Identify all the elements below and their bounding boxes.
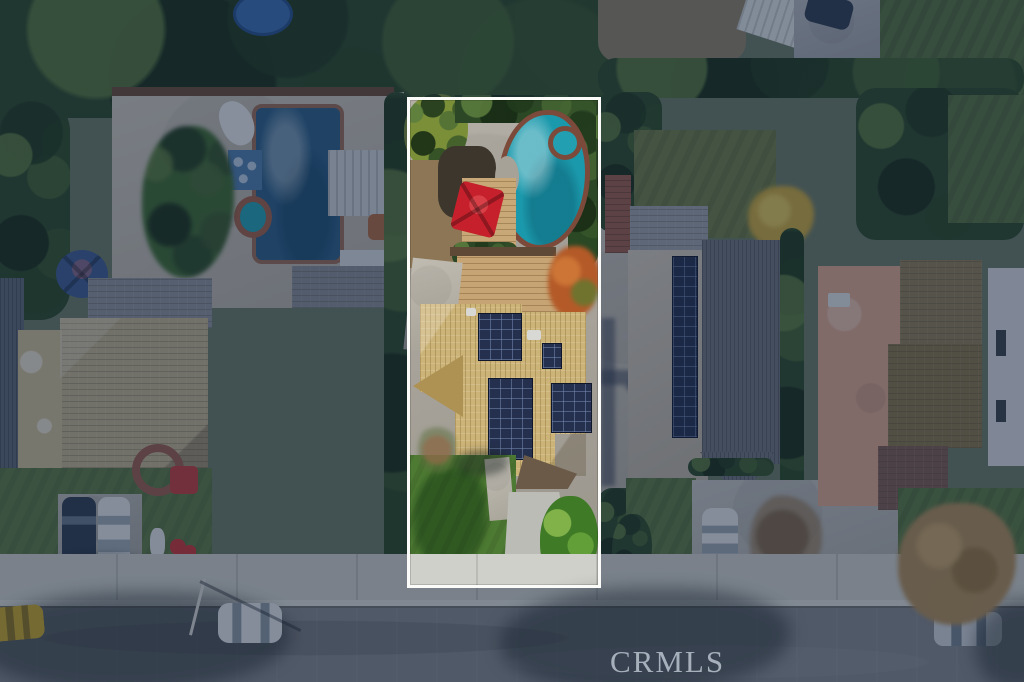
- brown-roof-lower: [888, 344, 982, 448]
- gravel-yard: [598, 0, 746, 62]
- aerial-listing-photo: CRMLS: [0, 0, 1024, 682]
- highlighted-lot-border: [407, 97, 601, 588]
- dark-ridged-roof: [702, 240, 786, 464]
- neighbor-spa: [234, 196, 272, 238]
- white-parked-car: [218, 603, 282, 643]
- far-right-back-lawn: [948, 95, 1024, 223]
- house-window-2: [996, 400, 1006, 422]
- left-fence: [112, 87, 394, 96]
- roof-shadow-vertical: [601, 318, 615, 486]
- crmls-watermark: CRMLS: [610, 644, 725, 680]
- red-play-set: [170, 466, 198, 494]
- patio-cover: [328, 150, 392, 216]
- roof-ac-unit: [828, 293, 850, 307]
- solar-strip: [672, 256, 698, 438]
- yellow-parked-car: [0, 604, 45, 643]
- brick-wall: [605, 175, 631, 253]
- house-window: [996, 330, 1006, 356]
- white-house-wall: [988, 268, 1024, 466]
- left-flat-roof: [18, 330, 62, 490]
- front-hedges: [688, 458, 774, 476]
- shed-roof: [630, 206, 708, 252]
